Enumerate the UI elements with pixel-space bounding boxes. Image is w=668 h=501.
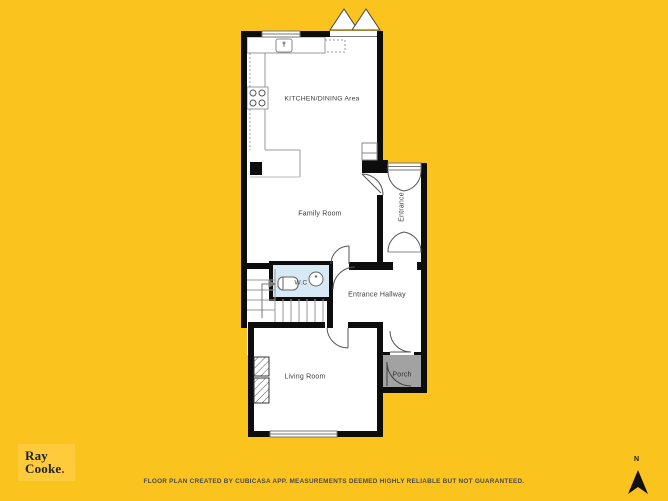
kitchen-sink (276, 39, 292, 52)
room-label-kitchen-dining: KITCHEN/DINING Area (284, 96, 359, 103)
ray-cooke-logo: Ray Cooke. (18, 444, 75, 481)
floor-plan-drawing (0, 0, 668, 501)
closet (362, 143, 377, 160)
room-label-entrance-hallway: Entrance Hallway (348, 292, 406, 299)
north-label: N (634, 456, 639, 463)
stove-icon (247, 87, 268, 109)
room-label-entrance: Entrance (399, 192, 406, 222)
floor-plan-page: KITCHEN/DINING Area Family Room Entrance… (0, 0, 668, 501)
room-label-wc: W.C (295, 280, 308, 287)
logo-line2: Cooke. (25, 462, 75, 475)
room-label-living-room: Living Room (284, 374, 325, 381)
bifold-door-icon (330, 9, 380, 37)
room-label-family-room: Family Room (298, 211, 341, 218)
logo-period: . (61, 461, 64, 476)
fireplace-icon (254, 357, 269, 403)
disclaimer-text: FLOOR PLAN CREATED BY CUBICASA APP. MEAS… (0, 478, 668, 485)
room-label-porch: Porch (392, 372, 411, 379)
